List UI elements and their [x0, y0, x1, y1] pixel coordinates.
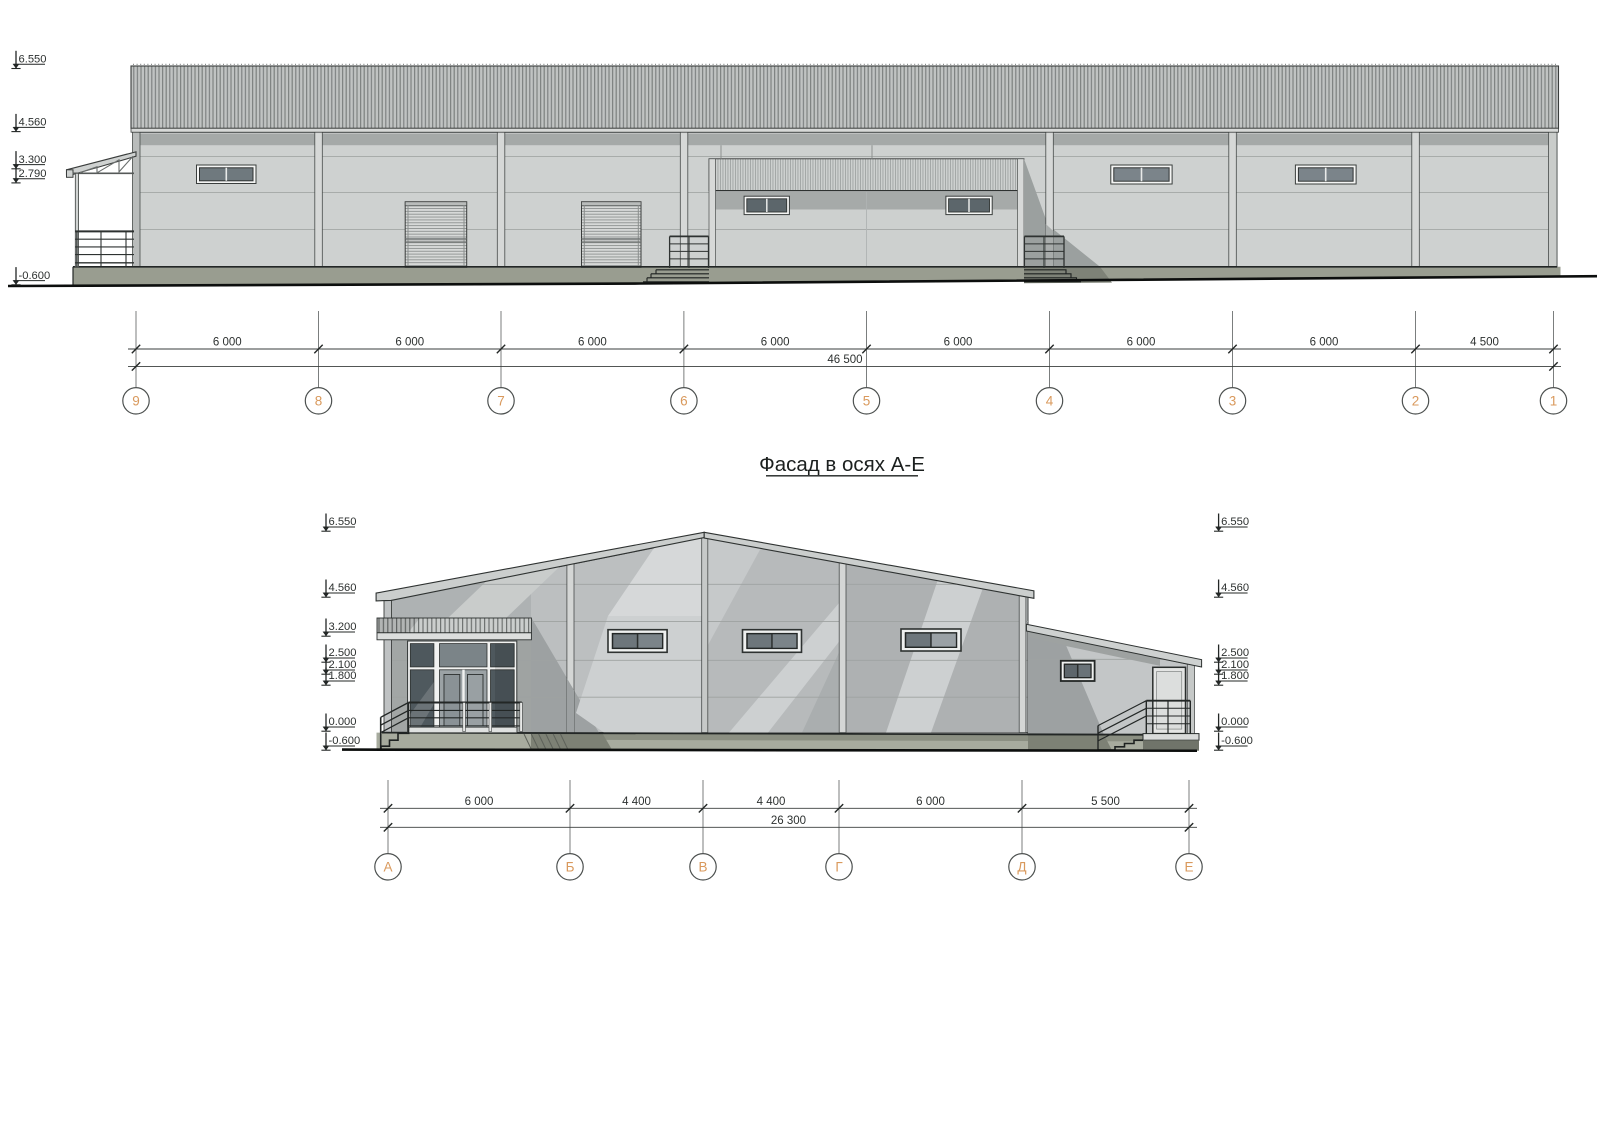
svg-text:4 400: 4 400 [622, 796, 651, 808]
svg-text:6 000: 6 000 [944, 337, 973, 349]
svg-text:8: 8 [315, 394, 323, 409]
svg-text:1.800: 1.800 [329, 670, 357, 682]
svg-text:6 000: 6 000 [465, 796, 494, 808]
svg-text:4.560: 4.560 [1221, 582, 1249, 594]
svg-text:5: 5 [863, 394, 871, 409]
svg-text:6.550: 6.550 [19, 54, 47, 66]
svg-text:-0.600: -0.600 [19, 270, 51, 282]
svg-text:2.500: 2.500 [329, 647, 357, 659]
svg-text:3.300: 3.300 [19, 154, 47, 166]
svg-text:Е: Е [1184, 860, 1193, 875]
svg-text:5 500: 5 500 [1091, 796, 1120, 808]
svg-text:6 000: 6 000 [395, 337, 424, 349]
svg-text:3: 3 [1229, 394, 1237, 409]
svg-text:3.200: 3.200 [329, 621, 357, 633]
svg-text:6.550: 6.550 [1221, 516, 1249, 528]
svg-text:4 500: 4 500 [1470, 337, 1499, 349]
svg-text:1: 1 [1550, 394, 1558, 409]
svg-text:7: 7 [497, 394, 505, 409]
svg-text:9: 9 [132, 394, 140, 409]
svg-text:4 400: 4 400 [757, 796, 786, 808]
svg-text:2.790: 2.790 [19, 168, 47, 180]
svg-text:6 000: 6 000 [916, 796, 945, 808]
svg-text:26 300: 26 300 [771, 815, 806, 827]
svg-text:-0.600: -0.600 [329, 735, 361, 747]
svg-text:Фасад в осях А-Е: Фасад в осях А-Е [759, 453, 925, 476]
svg-text:46 500: 46 500 [827, 354, 862, 366]
svg-text:-0.600: -0.600 [1221, 735, 1253, 747]
svg-text:4.560: 4.560 [19, 117, 47, 129]
svg-text:6 000: 6 000 [213, 337, 242, 349]
svg-text:1.800: 1.800 [1221, 670, 1249, 682]
svg-text:6.550: 6.550 [329, 516, 357, 528]
svg-text:6 000: 6 000 [578, 337, 607, 349]
svg-text:0.000: 0.000 [329, 716, 357, 728]
svg-text:6 000: 6 000 [761, 337, 790, 349]
svg-text:А: А [383, 860, 392, 875]
svg-text:4: 4 [1046, 394, 1054, 409]
svg-text:2: 2 [1412, 394, 1420, 409]
svg-text:Г: Г [835, 860, 843, 875]
svg-text:6 000: 6 000 [1310, 337, 1339, 349]
svg-text:Б: Б [566, 860, 575, 875]
svg-text:6: 6 [680, 394, 688, 409]
svg-text:4.560: 4.560 [329, 582, 357, 594]
svg-text:В: В [698, 860, 707, 875]
svg-text:0.000: 0.000 [1221, 716, 1249, 728]
svg-text:6 000: 6 000 [1127, 337, 1156, 349]
svg-text:Д: Д [1017, 860, 1026, 875]
svg-text:2.500: 2.500 [1221, 647, 1249, 659]
